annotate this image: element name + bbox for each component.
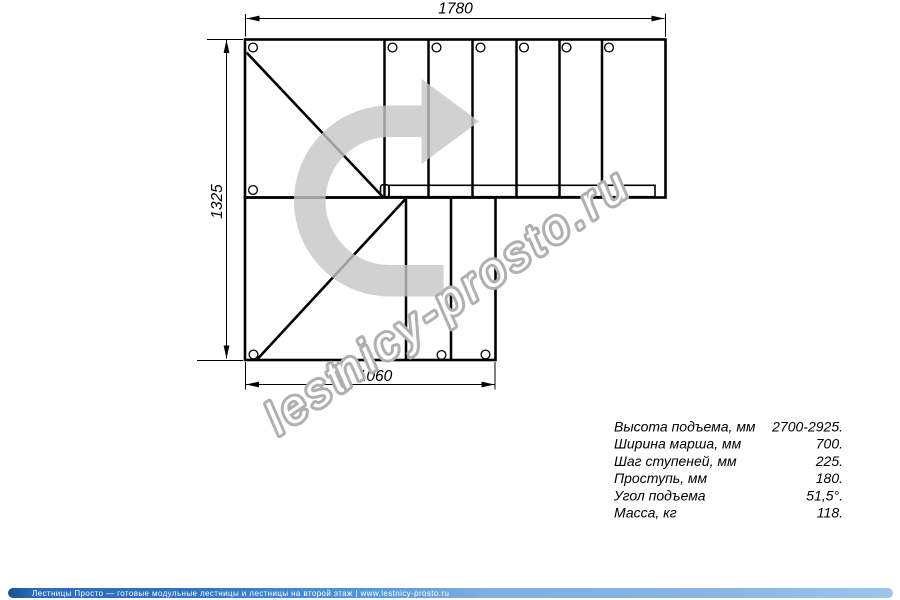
svg-text:Ширина марша, мм: Ширина марша, мм bbox=[614, 436, 742, 452]
svg-text:Проступь, мм: Проступь, мм bbox=[614, 470, 708, 486]
svg-text:225.: 225. bbox=[815, 453, 843, 469]
svg-text:Угол подъема: Угол подъема bbox=[613, 487, 706, 503]
svg-text:2700-2925.: 2700-2925. bbox=[771, 419, 843, 435]
svg-text:180.: 180. bbox=[816, 470, 843, 486]
svg-text:Высота подъема, мм: Высота подъема, мм bbox=[614, 419, 756, 435]
svg-text:Масса, кг: Масса, кг bbox=[614, 505, 677, 521]
svg-text:1325: 1325 bbox=[209, 184, 226, 219]
svg-text:118.: 118. bbox=[817, 505, 843, 521]
svg-text:Шаг ступеней, мм: Шаг ступеней, мм bbox=[614, 453, 737, 469]
svg-text:51,5°.: 51,5°. bbox=[806, 487, 843, 503]
svg-text:1780: 1780 bbox=[438, 1, 473, 18]
svg-text:700.: 700. bbox=[816, 436, 843, 452]
